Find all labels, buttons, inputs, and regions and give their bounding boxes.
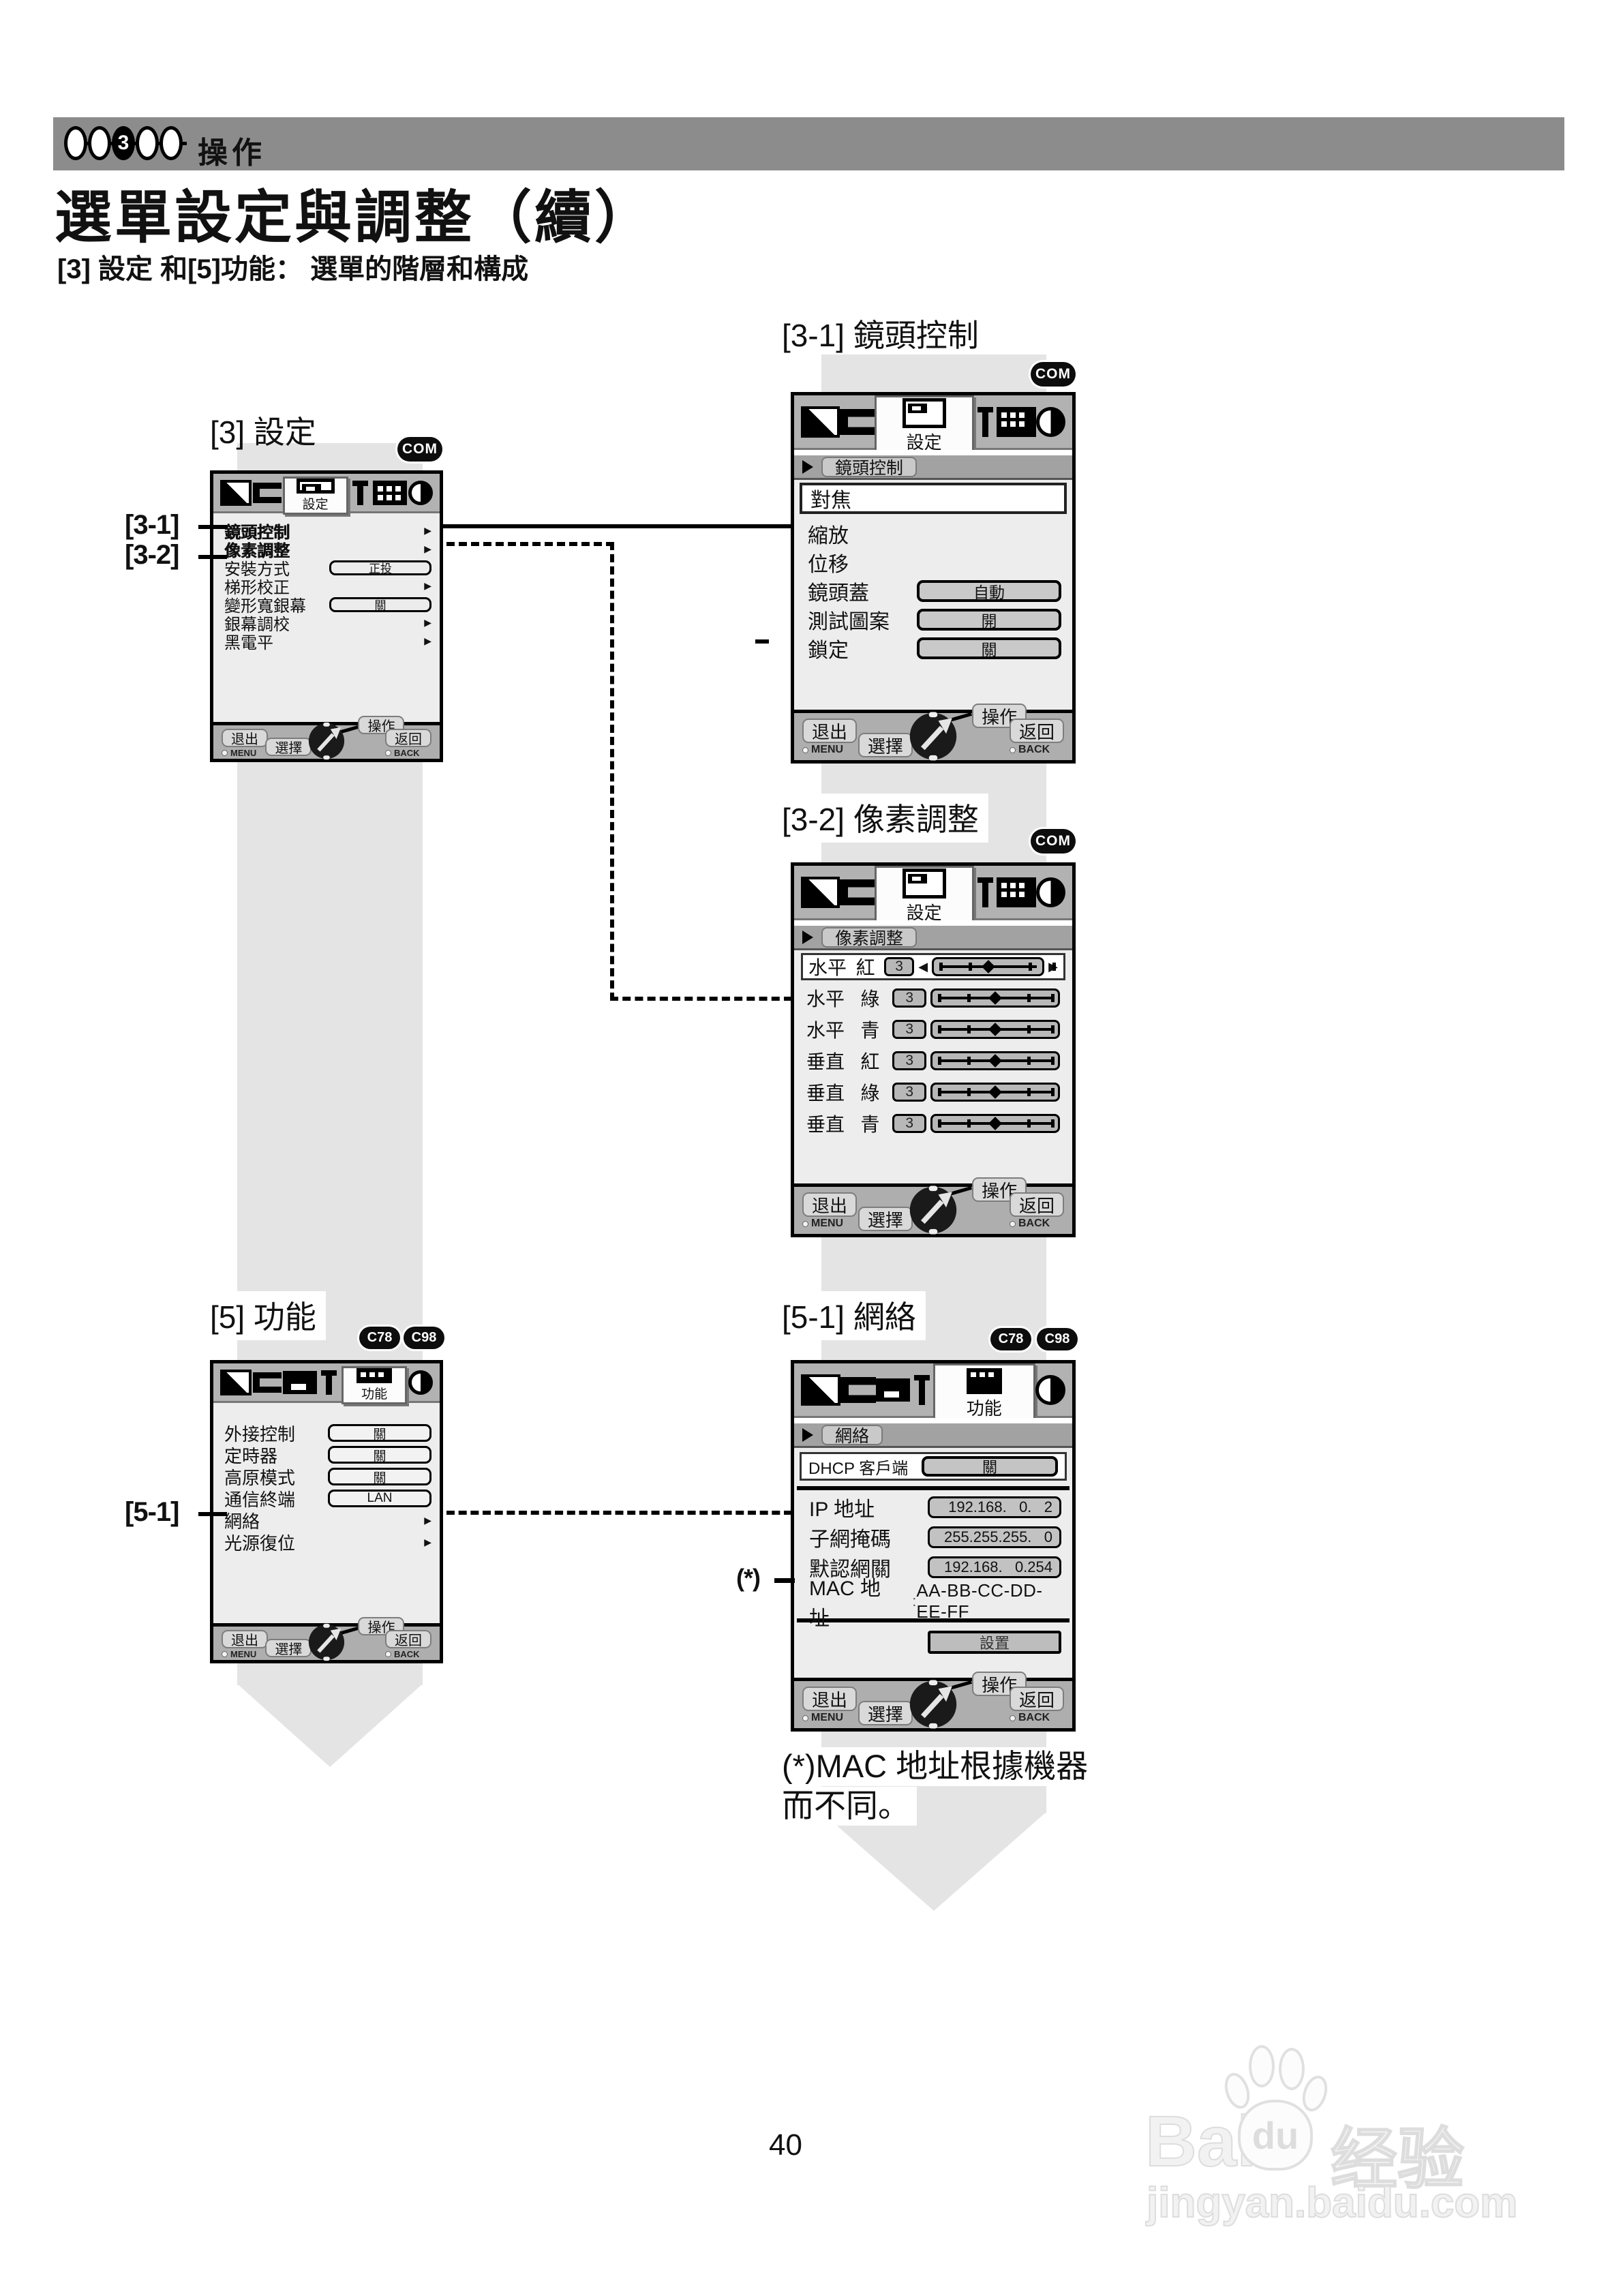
color-label: 青 bbox=[860, 1110, 888, 1137]
breadcrumb-label: 像素調整 bbox=[821, 927, 917, 948]
adjust-slider[interactable] bbox=[930, 1020, 1060, 1039]
adjust-slider[interactable] bbox=[930, 1083, 1060, 1102]
value-button[interactable]: 開 bbox=[917, 609, 1061, 631]
tab-function[interactable]: 功能 bbox=[933, 1363, 1035, 1425]
key-dot-icon bbox=[385, 1651, 391, 1657]
adjust-slider[interactable] bbox=[930, 988, 1060, 1008]
menu-item-label: 縮放 bbox=[808, 519, 849, 549]
exit-button[interactable]: 退出 bbox=[802, 719, 857, 743]
stray-dash bbox=[755, 639, 769, 644]
value-button[interactable]: 關 bbox=[328, 1424, 431, 1442]
key-dot-icon bbox=[1010, 1715, 1016, 1721]
menu3-bottombar: 退出 MENU 選擇 操作 返回 BACK bbox=[213, 722, 440, 759]
color-label: 綠 bbox=[860, 1078, 888, 1106]
install-tab-icon[interactable] bbox=[357, 481, 363, 505]
tab-settings[interactable]: 設定 bbox=[875, 395, 974, 457]
value-button[interactable]: 關 bbox=[328, 1468, 431, 1485]
menu-item-label: 測試圖案 bbox=[808, 605, 890, 635]
com-badge: COM bbox=[397, 437, 442, 462]
set-button-row: 設置 bbox=[794, 1631, 1072, 1654]
input-tab-icon[interactable] bbox=[253, 483, 282, 503]
axis-label: 垂直 bbox=[806, 1078, 856, 1106]
submenu-arrow-icon: ▶ bbox=[424, 617, 431, 629]
info-tab-icon[interactable] bbox=[1036, 877, 1065, 907]
info-tab-icon[interactable] bbox=[1036, 407, 1065, 437]
menu-item-test-pattern[interactable]: 測試圖案 開 bbox=[794, 605, 1072, 634]
back-button[interactable]: 返回 bbox=[385, 729, 431, 747]
menu-item-network[interactable]: 網絡 ▶ bbox=[213, 1509, 440, 1531]
picture-tab-icon[interactable] bbox=[220, 480, 252, 506]
menu-item-lock[interactable]: 鎖定 關 bbox=[794, 634, 1072, 663]
manual-page: 3 操作 選單設定與調整（續） [3] 設定 和[5]功能： 選單的階層和構成 … bbox=[0, 0, 1623, 2296]
selection-dial-icon[interactable] bbox=[907, 1184, 959, 1236]
flow-arrow-left bbox=[237, 1684, 423, 1767]
menu-item-label: 位移 bbox=[808, 547, 849, 577]
menu51-tabbar: 功能 bbox=[794, 1363, 1072, 1418]
step-circle bbox=[64, 126, 87, 160]
menu-item-label: DHCP 客戶端 bbox=[808, 1455, 908, 1479]
menu-item-focus-selected[interactable]: 對焦 bbox=[800, 483, 1067, 514]
info-tab-icon[interactable] bbox=[408, 481, 433, 505]
increase-arrow-icon[interactable]: ▶ bbox=[1048, 960, 1058, 974]
key-dot-icon bbox=[385, 750, 391, 756]
callout-line-32 bbox=[198, 555, 227, 559]
value-chip[interactable]: 3 bbox=[892, 1114, 926, 1133]
menu-item-label: 黑電平 bbox=[224, 629, 273, 653]
menu-item-subnet-mask[interactable]: 子網掩碼 255.255.255. 0 bbox=[794, 1524, 1072, 1550]
callout-line-mac bbox=[774, 1578, 795, 1583]
page-title: 選單設定與調整（續） bbox=[55, 172, 654, 254]
paw-pad: du bbox=[1238, 2100, 1313, 2171]
com-badge: COM bbox=[1031, 829, 1076, 854]
selection-dial-icon[interactable] bbox=[907, 1678, 959, 1730]
function-icon bbox=[357, 1368, 392, 1383]
install-tab-icon[interactable] bbox=[919, 1375, 925, 1405]
c78-badge: C78 bbox=[359, 1327, 400, 1349]
slider-thumb[interactable] bbox=[988, 991, 1002, 1005]
footnote-line2: 而不同。 bbox=[782, 1787, 917, 1826]
key-dot-icon bbox=[222, 1651, 228, 1657]
menu-item-label: 鎖定 bbox=[808, 633, 849, 663]
picture-tab-icon[interactable] bbox=[801, 406, 840, 438]
exit-button[interactable]: 退出 bbox=[802, 1192, 857, 1217]
connector-pixel-adjust-h2 bbox=[610, 997, 792, 1001]
submenu-arrow-icon: ▶ bbox=[424, 525, 431, 537]
menu32-title: [3-2] 像素調整 bbox=[782, 794, 988, 843]
display-tab-icon[interactable] bbox=[997, 407, 1036, 437]
adjust-row-h-green[interactable]: 水平 綠 3 bbox=[801, 984, 1065, 1012]
settings-icon bbox=[902, 868, 946, 898]
value-chip[interactable]: 3 bbox=[884, 957, 915, 976]
menu32-body: 水平 紅 3 ◀ ▶ 水平 綠 3 水平 青 3 垂直 紅 bbox=[794, 950, 1072, 1183]
install-tab-icon[interactable] bbox=[982, 877, 988, 907]
menu5-window: 功能 外接控制 關 定時器 關 高原模式 關 通信終端 LAN 網絡 bbox=[210, 1360, 443, 1663]
menu31-bottombar: 退出 MENU 選擇 操作 返回 BACK bbox=[794, 710, 1072, 760]
axis-label: 垂直 bbox=[806, 1047, 856, 1074]
exit-key-label: MENU bbox=[230, 1649, 256, 1659]
adjust-row-v-red[interactable]: 垂直 紅 3 bbox=[801, 1047, 1065, 1074]
slider-thumb[interactable] bbox=[988, 1023, 1002, 1036]
menu-item-mac-address: MAC 地址 : AA-BB-CC-DD-EE-FF bbox=[794, 1590, 1072, 1613]
adjust-row-h-red[interactable]: 水平 紅 3 ◀ ▶ bbox=[801, 953, 1065, 980]
callout-3-2: [3-2] bbox=[125, 540, 179, 571]
menu3-window: 設定 鏡頭控制 ▶ 像素調整 ▶ 安裝方式 正投 梯形校正 ▶ bbox=[210, 470, 443, 762]
back-button[interactable]: 返回 bbox=[1010, 719, 1064, 743]
settings-icon bbox=[297, 479, 335, 494]
back-button[interactable]: 返回 bbox=[385, 1630, 431, 1648]
step-circle bbox=[136, 126, 159, 160]
menu-item-external-control[interactable]: 外接控制 關 bbox=[213, 1422, 440, 1444]
menu-item-light-source-reset[interactable]: 光源復位 ▶ bbox=[213, 1531, 440, 1553]
tab-settings[interactable]: 設定 bbox=[283, 477, 348, 515]
back-key-label: BACK bbox=[394, 748, 420, 758]
menu5-tabbar: 功能 bbox=[213, 1363, 440, 1403]
mac-footnote-2: 而不同。 bbox=[782, 1779, 917, 1826]
menu-item-dhcp[interactable]: DHCP 客戶端 關 bbox=[800, 1452, 1067, 1481]
exit-key-label: MENU bbox=[230, 748, 256, 758]
menu51-window: 功能 網絡 DHCP 客戶端 關 IP 地址 192.168. 0. 2 子網掩… bbox=[791, 1360, 1076, 1732]
step-circle-active: 3 bbox=[112, 126, 135, 160]
c78-badge: C78 bbox=[990, 1328, 1031, 1350]
picture-tab-icon[interactable] bbox=[801, 1374, 840, 1406]
menu51-title: [5-1] 網絡 bbox=[782, 1291, 926, 1340]
menu51-bottombar: 退出 MENU 選擇 操作 返回 BACK bbox=[794, 1678, 1072, 1728]
key-dot-icon bbox=[802, 1221, 808, 1227]
value-button[interactable]: 自動 bbox=[917, 580, 1061, 602]
adjust-slider[interactable] bbox=[932, 957, 1044, 976]
menu51-breadcrumb: 網絡 bbox=[794, 1423, 1072, 1448]
exit-button[interactable]: 退出 bbox=[802, 1687, 857, 1711]
key-dot-icon bbox=[1010, 747, 1016, 753]
menu3-title: [3] 設定 bbox=[210, 408, 316, 453]
picture-tab-icon[interactable] bbox=[220, 1370, 252, 1395]
mac-address-value: AA-BB-CC-DD-EE-FF bbox=[916, 1580, 1064, 1622]
display-tab-icon[interactable] bbox=[283, 1371, 317, 1394]
menu-item-high-altitude[interactable]: 高原模式 關 bbox=[213, 1466, 440, 1487]
menu5-bottombar: 退出 MENU 選擇 操作 返回 BACK bbox=[213, 1623, 440, 1660]
menu31-title: [3-1] 鏡頭控制 bbox=[782, 311, 979, 356]
tab-label: 設定 bbox=[303, 494, 329, 513]
back-key-label: BACK bbox=[394, 1649, 420, 1659]
select-button[interactable]: 選擇 bbox=[858, 1207, 913, 1231]
menu32-window: 設定 像素調整 水平 紅 3 ◀ ▶ 水平 綠 3 bbox=[791, 862, 1076, 1237]
menu-item-label: 子網掩碼 bbox=[809, 1522, 891, 1552]
value-chip[interactable]: 3 bbox=[892, 1020, 926, 1039]
submenu-arrow-icon: ▶ bbox=[424, 543, 431, 555]
select-button[interactable]: 選擇 bbox=[858, 1701, 913, 1725]
com-badge: COM bbox=[1031, 362, 1076, 387]
display-tab-icon[interactable] bbox=[997, 877, 1036, 907]
menu-item-comm-terminal[interactable]: 通信終端 LAN bbox=[213, 1487, 440, 1509]
exit-button[interactable]: 退出 bbox=[222, 729, 268, 747]
menu32-tabbar: 設定 bbox=[794, 866, 1072, 920]
install-tab-icon[interactable] bbox=[326, 1370, 332, 1395]
step-circle bbox=[160, 126, 183, 160]
menu31-window: 設定 鏡頭控制 對焦 縮放 位移 鏡頭蓋 自動 測試圖案 開 鎖定 bbox=[791, 392, 1076, 764]
exit-key-label: MENU bbox=[811, 1712, 843, 1724]
value-button[interactable]: LAN bbox=[328, 1490, 431, 1507]
tab-label: 功能 bbox=[967, 1395, 1002, 1420]
menu3-tabbar: 設定 bbox=[213, 474, 440, 513]
ip-address-value: 192.168. 0. 2 bbox=[928, 1496, 1061, 1518]
subnet-mask-value: 255.255.255. 0 bbox=[928, 1526, 1061, 1548]
picture-tab-icon[interactable] bbox=[801, 877, 840, 908]
value-chip[interactable]: 3 bbox=[892, 1083, 926, 1102]
paw-toe bbox=[1249, 2045, 1275, 2087]
menu-item-zoom[interactable]: 縮放 bbox=[794, 519, 1072, 548]
callout-mac-star: (*) bbox=[736, 1564, 760, 1592]
color-label: 青 bbox=[860, 1016, 888, 1043]
breadcrumb-arrow-icon bbox=[802, 931, 813, 944]
menu32-breadcrumb: 像素調整 bbox=[794, 926, 1072, 950]
menu5-title: [5] 功能 bbox=[210, 1291, 326, 1340]
key-dot-icon bbox=[802, 747, 808, 753]
back-key-label: BACK bbox=[1018, 1712, 1050, 1724]
display-tab-icon[interactable] bbox=[876, 1378, 910, 1402]
key-dot-icon bbox=[802, 1715, 808, 1721]
selection-dial-icon[interactable] bbox=[307, 721, 346, 761]
menu51-body: DHCP 客戶端 關 IP 地址 192.168. 0. 2 子網掩碼 255.… bbox=[794, 1448, 1072, 1678]
info-tab-icon[interactable] bbox=[1035, 1375, 1065, 1405]
watermark-url: jingyan.baidu.com bbox=[1147, 2179, 1517, 2227]
paw-toe bbox=[1279, 2048, 1305, 2090]
menu-item-black-level[interactable]: 黑電平 ▶ bbox=[213, 632, 440, 650]
adjust-slider[interactable] bbox=[930, 1051, 1060, 1070]
page-subtitle: [3] 設定 和[5]功能： 選單的階層和構成 bbox=[57, 247, 528, 286]
value-button[interactable]: 關 bbox=[329, 597, 431, 612]
tab-label: 功能 bbox=[361, 1384, 387, 1402]
connector-pixel-adjust-h1 bbox=[446, 542, 614, 546]
back-key-label: BACK bbox=[1018, 1218, 1050, 1230]
breadcrumb-arrow-icon bbox=[802, 1428, 813, 1442]
selection-dial-icon[interactable] bbox=[907, 710, 959, 762]
input-tab-icon[interactable] bbox=[840, 409, 875, 435]
connector-network bbox=[446, 1511, 792, 1515]
axis-label: 水平 bbox=[806, 984, 856, 1012]
menu-item-label: MAC 地址 bbox=[809, 1571, 885, 1631]
slider-thumb[interactable] bbox=[988, 1117, 1002, 1130]
section-header-bar: 3 操作 bbox=[53, 117, 1564, 170]
function-icon bbox=[967, 1368, 1002, 1394]
tab-settings[interactable]: 設定 bbox=[875, 866, 974, 927]
input-tab-icon[interactable] bbox=[253, 1372, 282, 1393]
input-tab-icon[interactable] bbox=[840, 879, 875, 905]
submenu-arrow-icon: ▶ bbox=[424, 580, 431, 592]
settings-icon bbox=[902, 398, 946, 428]
menu-item-ip-address[interactable]: IP 地址 192.168. 0. 2 bbox=[794, 1494, 1072, 1520]
c98-badge: C98 bbox=[1037, 1328, 1078, 1350]
adjust-row-h-blue[interactable]: 水平 青 3 bbox=[801, 1016, 1065, 1043]
page-number: 40 bbox=[769, 2128, 802, 2162]
adjust-row-v-blue[interactable]: 垂直 青 3 bbox=[801, 1110, 1065, 1137]
back-key-label: BACK bbox=[1018, 744, 1050, 756]
callout-line-31 bbox=[198, 525, 227, 529]
menu31-tabbar: 設定 bbox=[794, 395, 1072, 450]
back-button[interactable]: 返回 bbox=[1010, 1687, 1064, 1711]
gateway-value: 192.168. 0.254 bbox=[928, 1556, 1061, 1578]
breadcrumb-label: 鏡頭控制 bbox=[821, 457, 917, 477]
menu-item-label: IP 地址 bbox=[809, 1492, 875, 1522]
step-circle bbox=[88, 126, 111, 160]
value-chip[interactable]: 3 bbox=[892, 1051, 926, 1070]
slider-thumb[interactable] bbox=[988, 1054, 1002, 1068]
info-tab-icon[interactable] bbox=[408, 1370, 433, 1395]
menu-item-label: 鏡頭蓋 bbox=[808, 576, 869, 606]
menu3-body: 鏡頭控制 ▶ 像素調整 ▶ 安裝方式 正投 梯形校正 ▶ 變形寬銀幕 關 銀幕調… bbox=[213, 513, 440, 722]
submenu-arrow-icon: ▶ bbox=[424, 1537, 431, 1548]
breadcrumb-arrow-icon bbox=[802, 460, 813, 474]
breadcrumb-label: 網絡 bbox=[821, 1425, 883, 1445]
paw-toe bbox=[1220, 2070, 1254, 2112]
select-button[interactable]: 選擇 bbox=[265, 738, 312, 756]
value-button[interactable]: 關 bbox=[328, 1446, 431, 1464]
section-divider bbox=[797, 1486, 1070, 1490]
menu32-bottombar: 退出 MENU 選擇 操作 返回 BACK bbox=[794, 1183, 1072, 1234]
value-chip[interactable]: 3 bbox=[892, 988, 926, 1008]
menu-item-label: 光源復位 bbox=[224, 1530, 295, 1555]
slider-thumb[interactable] bbox=[982, 960, 995, 973]
menu-item-lens-cover[interactable]: 鏡頭蓋 自動 bbox=[794, 577, 1072, 605]
key-dot-icon bbox=[1010, 1221, 1016, 1227]
flow-arrow-right bbox=[821, 1812, 1046, 1911]
input-tab-icon[interactable] bbox=[840, 1377, 876, 1403]
connector-lens-control bbox=[443, 524, 792, 528]
menu-item-timer[interactable]: 定時器 關 bbox=[213, 1444, 440, 1466]
menu31-breadcrumb: 鏡頭控制 bbox=[794, 455, 1072, 480]
baidu-paw-icon: du bbox=[1226, 2045, 1328, 2175]
key-dot-icon bbox=[222, 750, 228, 756]
adjust-slider[interactable] bbox=[930, 1114, 1060, 1133]
display-tab-icon[interactable] bbox=[373, 481, 407, 505]
color-label: 紅 bbox=[860, 1047, 888, 1074]
menu-item-shift[interactable]: 位移 bbox=[794, 548, 1072, 577]
install-tab-icon[interactable] bbox=[982, 407, 988, 437]
value-button[interactable]: 正投 bbox=[329, 560, 431, 575]
decrease-arrow-icon[interactable]: ◀ bbox=[918, 960, 928, 974]
c98-badge: C98 bbox=[404, 1327, 444, 1349]
value-button[interactable]: 關 bbox=[922, 1456, 1058, 1477]
exit-button[interactable]: 退出 bbox=[222, 1630, 268, 1648]
menu5-body: 外接控制 關 定時器 關 高原模式 關 通信終端 LAN 網絡 ▶ 光源復位 ▶ bbox=[213, 1403, 440, 1623]
selection-dial-icon[interactable] bbox=[307, 1622, 346, 1662]
adjust-row-v-green[interactable]: 垂直 綠 3 bbox=[801, 1078, 1065, 1106]
exit-key-label: MENU bbox=[811, 744, 843, 756]
axis-label: 垂直 bbox=[806, 1110, 856, 1137]
section-label: 操作 bbox=[198, 128, 266, 172]
submenu-arrow-icon: ▶ bbox=[424, 635, 431, 647]
callout-line-51 bbox=[198, 1512, 227, 1516]
select-button[interactable]: 選擇 bbox=[265, 1639, 312, 1657]
slider-thumb[interactable] bbox=[988, 1085, 1002, 1099]
callout-5-1: [5-1] bbox=[125, 1497, 179, 1528]
tab-function[interactable]: 功能 bbox=[342, 1366, 407, 1404]
axis-label: 水平 bbox=[808, 953, 852, 980]
select-button[interactable]: 選擇 bbox=[858, 733, 913, 757]
axis-label: 水平 bbox=[806, 1016, 856, 1043]
exit-key-label: MENU bbox=[811, 1218, 843, 1230]
set-button[interactable]: 設置 bbox=[928, 1631, 1061, 1654]
color-label: 綠 bbox=[860, 984, 888, 1012]
callout-3-1: [3-1] bbox=[125, 510, 179, 541]
back-button[interactable]: 返回 bbox=[1010, 1192, 1064, 1217]
step-indicator: 3 bbox=[64, 126, 183, 160]
connector-pixel-adjust-v bbox=[610, 542, 614, 1001]
submenu-arrow-icon: ▶ bbox=[424, 1515, 431, 1526]
color-label: 紅 bbox=[856, 953, 880, 980]
menu31-body: 對焦 縮放 位移 鏡頭蓋 自動 測試圖案 開 鎖定 關 bbox=[794, 480, 1072, 710]
value-button[interactable]: 關 bbox=[917, 637, 1061, 659]
